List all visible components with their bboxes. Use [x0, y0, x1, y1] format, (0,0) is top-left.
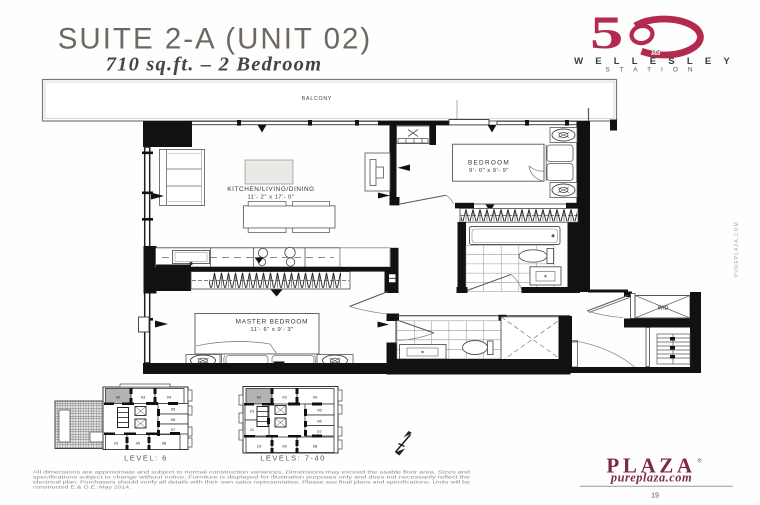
svg-text:®: ®: [698, 458, 702, 465]
svg-text:W/D: W/D: [658, 306, 669, 312]
svg-text:MASTER BEDROOM: MASTER BEDROOM: [236, 319, 309, 326]
svg-text:LEVELS: 7-40: LEVELS: 7-40: [260, 454, 326, 463]
svg-text:06: 06: [171, 417, 176, 422]
svg-text:06: 06: [317, 419, 322, 424]
svg-text:03: 03: [282, 395, 287, 400]
svg-text:04: 04: [167, 395, 172, 400]
svg-text:02: 02: [116, 395, 121, 400]
svg-text:9'- 0" x 9'- 9": 9'- 0" x 9'- 9": [469, 168, 509, 174]
svg-text:03: 03: [141, 395, 146, 400]
svg-text:01: 01: [250, 409, 255, 414]
svg-text:11'- 6" x 9'- 3": 11'- 6" x 9'- 3": [250, 327, 293, 333]
svg-text:5: 5: [590, 7, 623, 58]
svg-text:SUITE 2-A (UNIT 02): SUITE 2-A (UNIT 02): [58, 23, 373, 56]
svg-text:PUREPLAZA.COM: PUREPLAZA.COM: [734, 221, 740, 277]
svg-text:08: 08: [162, 441, 167, 446]
svg-text:05: 05: [317, 408, 322, 413]
svg-text:04: 04: [313, 395, 318, 400]
svg-text:09: 09: [136, 441, 141, 446]
svg-text:19: 19: [651, 493, 659, 500]
svg-text:02: 02: [257, 395, 262, 400]
svg-text:08: 08: [313, 444, 318, 449]
svg-text:11'- 2" x 17'- 0": 11'- 2" x 17'- 0": [248, 195, 295, 201]
svg-text:STATION: STATION: [605, 67, 702, 74]
svg-text:LEVEL: 6: LEVEL: 6: [124, 454, 168, 463]
svg-text:BALCONY: BALCONY: [302, 96, 332, 102]
svg-text:10: 10: [257, 444, 262, 449]
svg-text:constructed E.& O.E. May 2014.: constructed E.& O.E. May 2014.: [33, 485, 131, 490]
svg-text:09: 09: [282, 444, 287, 449]
svg-text:KITCHEN/LIVING/DINING: KITCHEN/LIVING/DINING: [227, 186, 315, 193]
svg-text:BEDROOM: BEDROOM: [468, 160, 510, 167]
svg-text:07: 07: [317, 429, 322, 434]
svg-text:05: 05: [171, 407, 176, 412]
svg-text:WELLESLEY: WELLESLEY: [574, 56, 742, 67]
svg-text:pureplaza.com: pureplaza.com: [610, 471, 692, 485]
svg-text:10: 10: [114, 441, 119, 446]
svg-text:07: 07: [171, 427, 176, 432]
svg-text:710 sq.ft. – 2 Bedroom: 710 sq.ft. – 2 Bedroom: [106, 54, 323, 76]
